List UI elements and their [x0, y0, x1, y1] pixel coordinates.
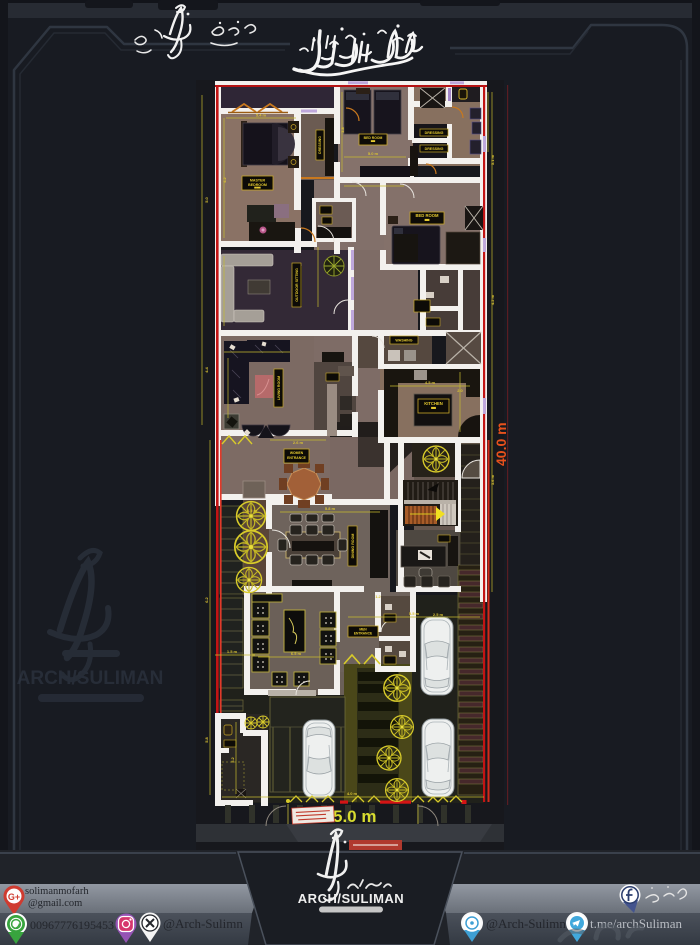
svg-text:ARCH/SULIMAN: ARCH/SULIMAN [298, 891, 404, 906]
svg-text:6.2: 6.2 [204, 596, 209, 602]
svg-text:2.5 m: 2.5 m [433, 612, 444, 617]
svg-text:BED ROOM: BED ROOM [415, 213, 439, 218]
svg-text:DRESSING: DRESSING [425, 131, 444, 135]
svg-text:ENTRANCE: ENTRANCE [287, 456, 307, 460]
svg-text:@Arch-Sulimn: @Arch-Sulimn [486, 916, 566, 931]
svg-text:2.6 m: 2.6 m [293, 440, 304, 445]
svg-text:4.2 m: 4.2 m [490, 294, 495, 305]
svg-text:ARCH/SULIMAN: ARCH/SULIMAN [17, 668, 164, 689]
svg-text:5.5 m: 5.5 m [409, 611, 420, 616]
svg-text:▀▀: ▀▀ [425, 218, 430, 223]
svg-text:ENTRANCE: ENTRANCE [354, 632, 373, 636]
svg-text:G+: G+ [8, 892, 20, 902]
svg-text:DRESSING: DRESSING [425, 147, 444, 151]
svg-text:WOMEN: WOMEN [290, 451, 304, 455]
svg-text:WASHING: WASHING [395, 339, 412, 343]
svg-text:5.8: 5.8 [204, 736, 209, 742]
svg-text:solimanmofarh: solimanmofarh [25, 886, 89, 897]
svg-text:▀▀: ▀▀ [431, 406, 436, 411]
svg-text:MASTER: MASTER [250, 179, 266, 183]
svg-text:1.5 m: 1.5 m [227, 649, 238, 654]
svg-text:DRESSING: DRESSING [318, 136, 322, 154]
svg-text:▀▀▀: ▀▀▀ [254, 187, 261, 191]
svg-text:40.0 m: 40.0 m [493, 422, 509, 466]
svg-text:4.5 m: 4.5 m [425, 380, 436, 385]
svg-text:4.0 m: 4.0 m [347, 791, 358, 796]
svg-text:5.2: 5.2 [230, 756, 235, 762]
svg-text:LIVING ROOM: LIVING ROOM [277, 376, 281, 400]
svg-text:5.0: 5.0 [204, 196, 209, 202]
svg-text:4.2: 4.2 [222, 176, 227, 182]
svg-text:3.6 m: 3.6 m [490, 474, 495, 485]
svg-text:4.4: 4.4 [204, 366, 209, 372]
svg-text:KITCHEN: KITCHEN [424, 401, 443, 406]
svg-text:00967776195453: 00967776195453 [30, 918, 114, 932]
svg-text:DINING ROOM: DINING ROOM [351, 534, 355, 559]
svg-text:6.5 m: 6.5 m [291, 651, 302, 656]
svg-text:1.2: 1.2 [375, 594, 381, 599]
svg-text:5.4 m: 5.4 m [256, 113, 267, 118]
svg-text:5.1 m: 5.1 m [490, 154, 495, 165]
svg-text:2.0: 2.0 [457, 388, 463, 393]
svg-text:OUTDOOR SITTING: OUTDOOR SITTING [295, 268, 299, 302]
svg-text:5.8 m: 5.8 m [325, 506, 336, 511]
svg-text:@Arch-Sulimn: @Arch-Sulimn [163, 916, 243, 931]
svg-text:@gmail.com: @gmail.com [28, 898, 82, 909]
svg-text:3.5 m: 3.5 m [247, 508, 258, 513]
svg-text:3.8: 3.8 [340, 126, 345, 132]
svg-text:5.0 m: 5.0 m [368, 151, 379, 156]
